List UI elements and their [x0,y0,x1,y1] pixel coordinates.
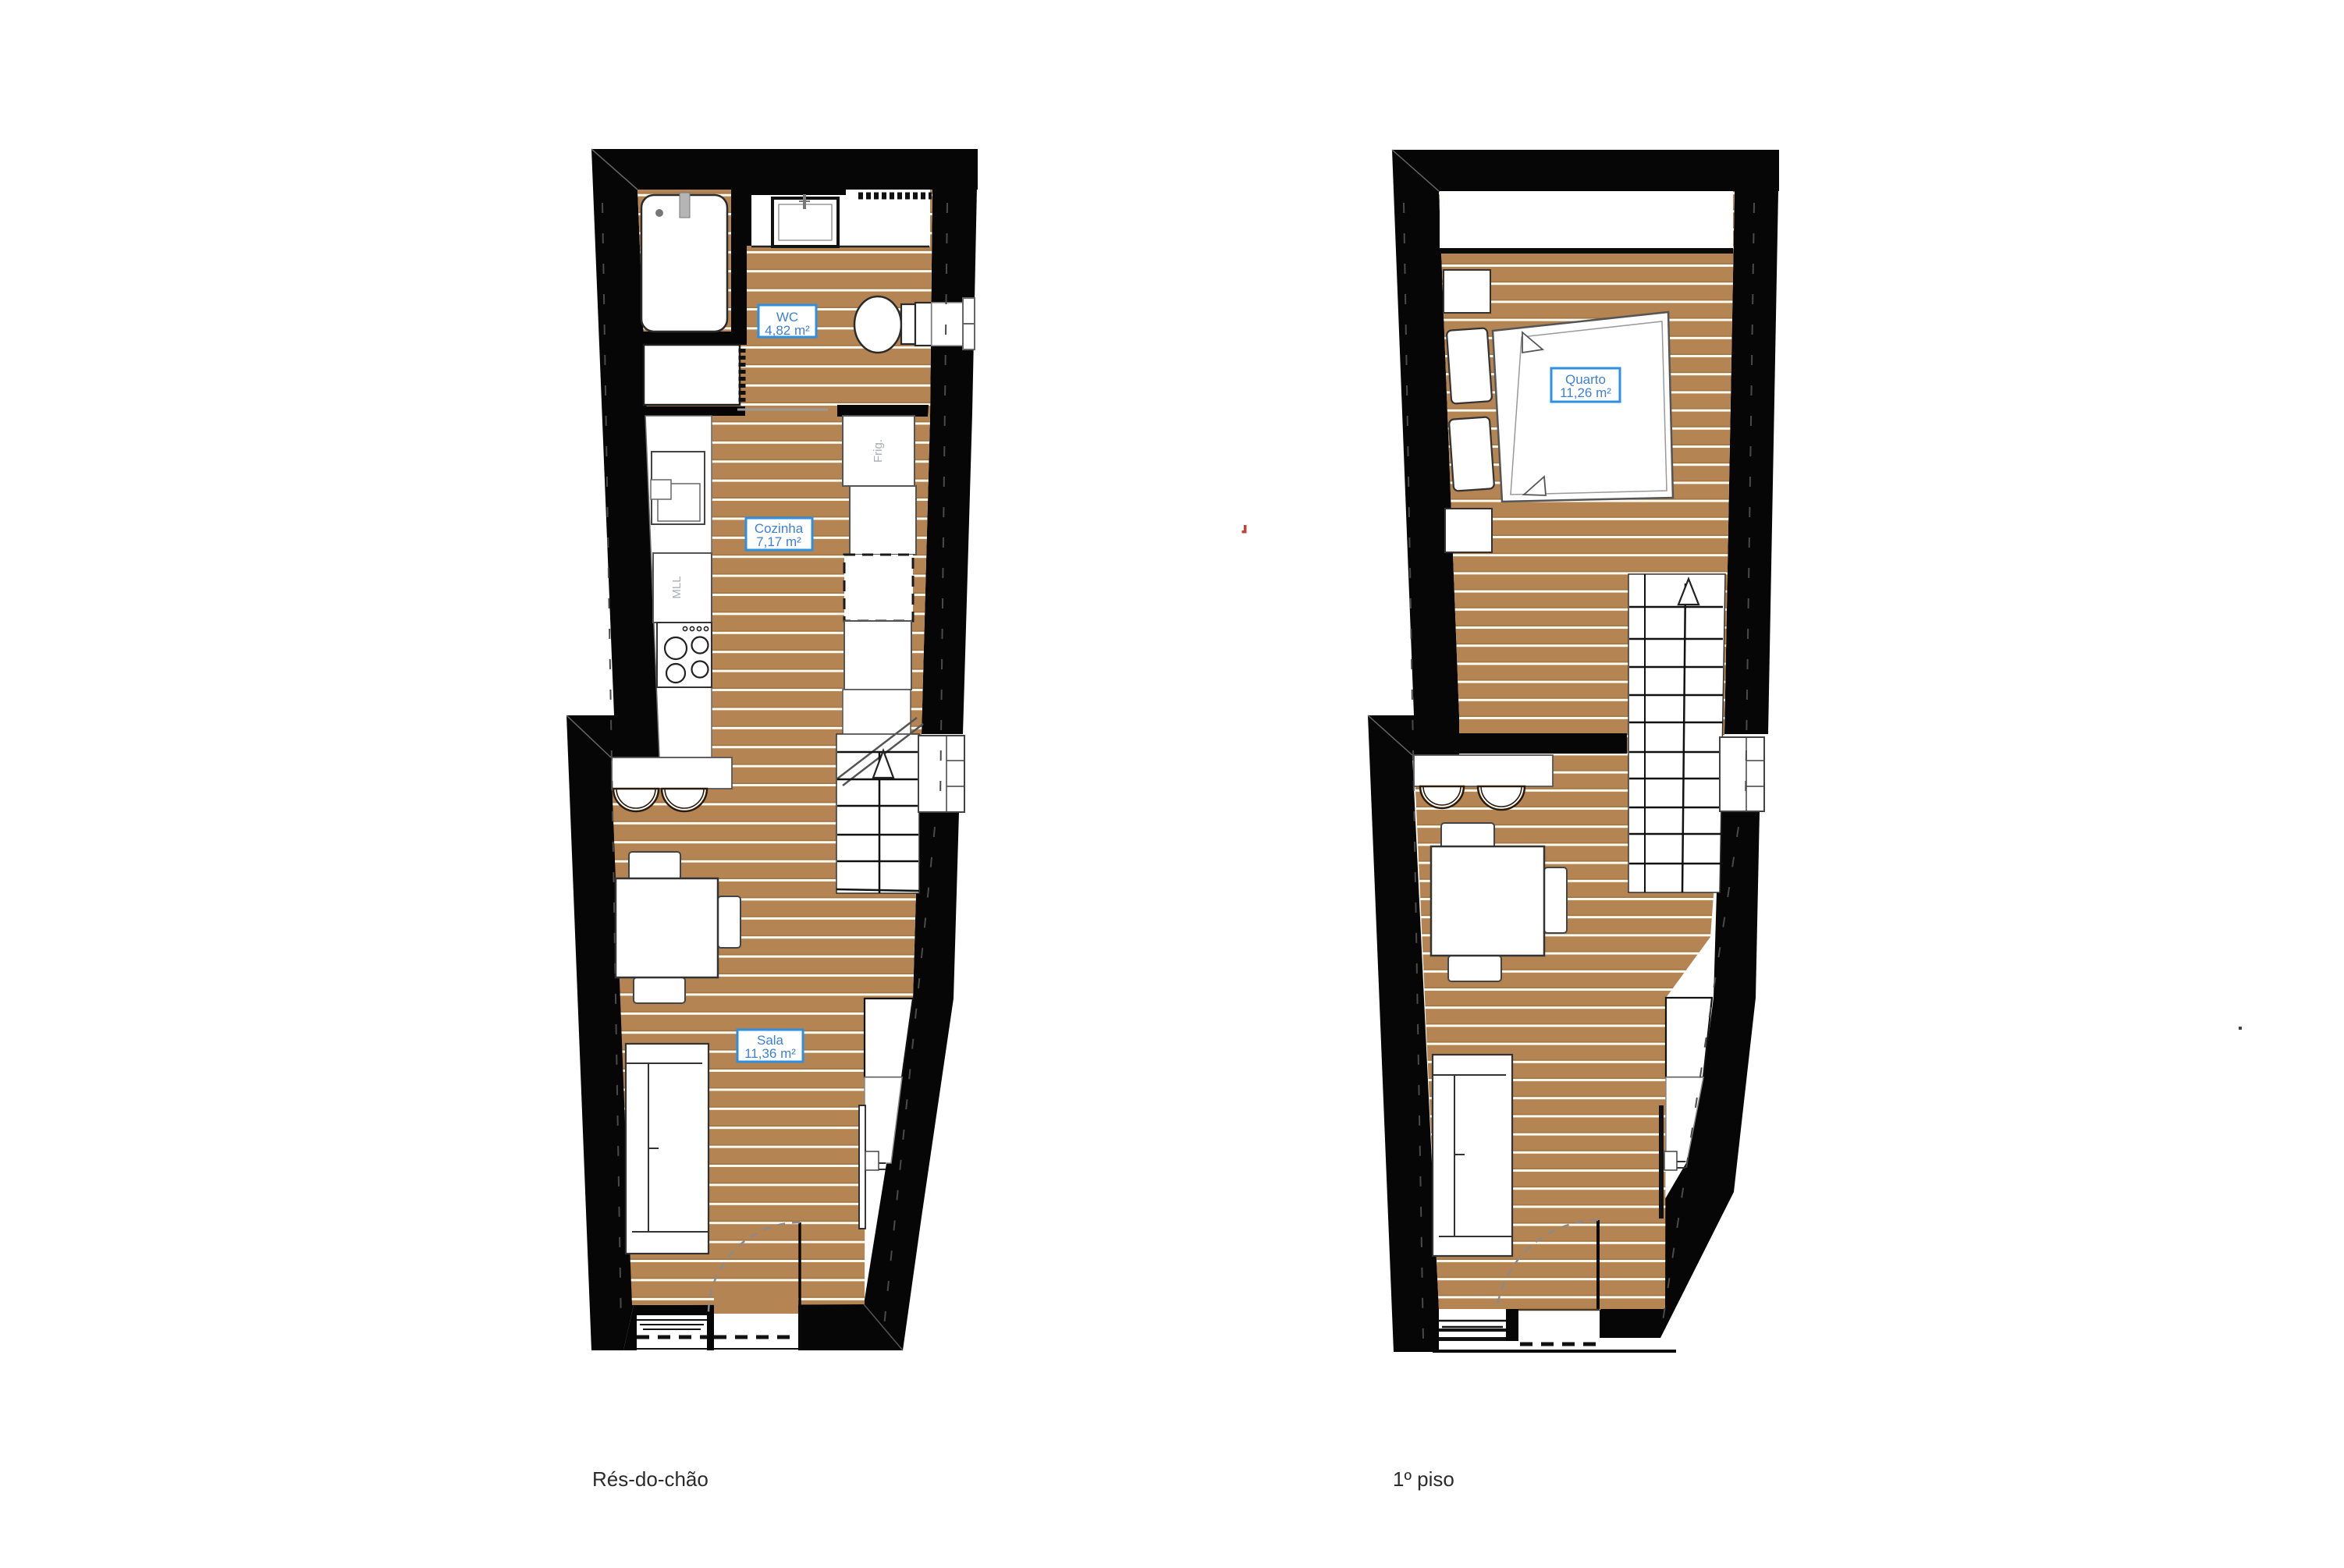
svg-text:7,17 m²: 7,17 m² [756,534,801,549]
svg-text:1º piso: 1º piso [1393,1467,1454,1491]
svg-text:11,26 m²: 11,26 m² [1560,385,1611,400]
svg-text:11,36 m²: 11,36 m² [744,1046,796,1061]
svg-text:4,82 m²: 4,82 m² [765,323,810,338]
svg-text:Frig.: Frig. [872,439,885,463]
svg-text:MLL: MLL [670,576,684,598]
svg-text:Rés-do-chão: Rés-do-chão [592,1467,709,1491]
